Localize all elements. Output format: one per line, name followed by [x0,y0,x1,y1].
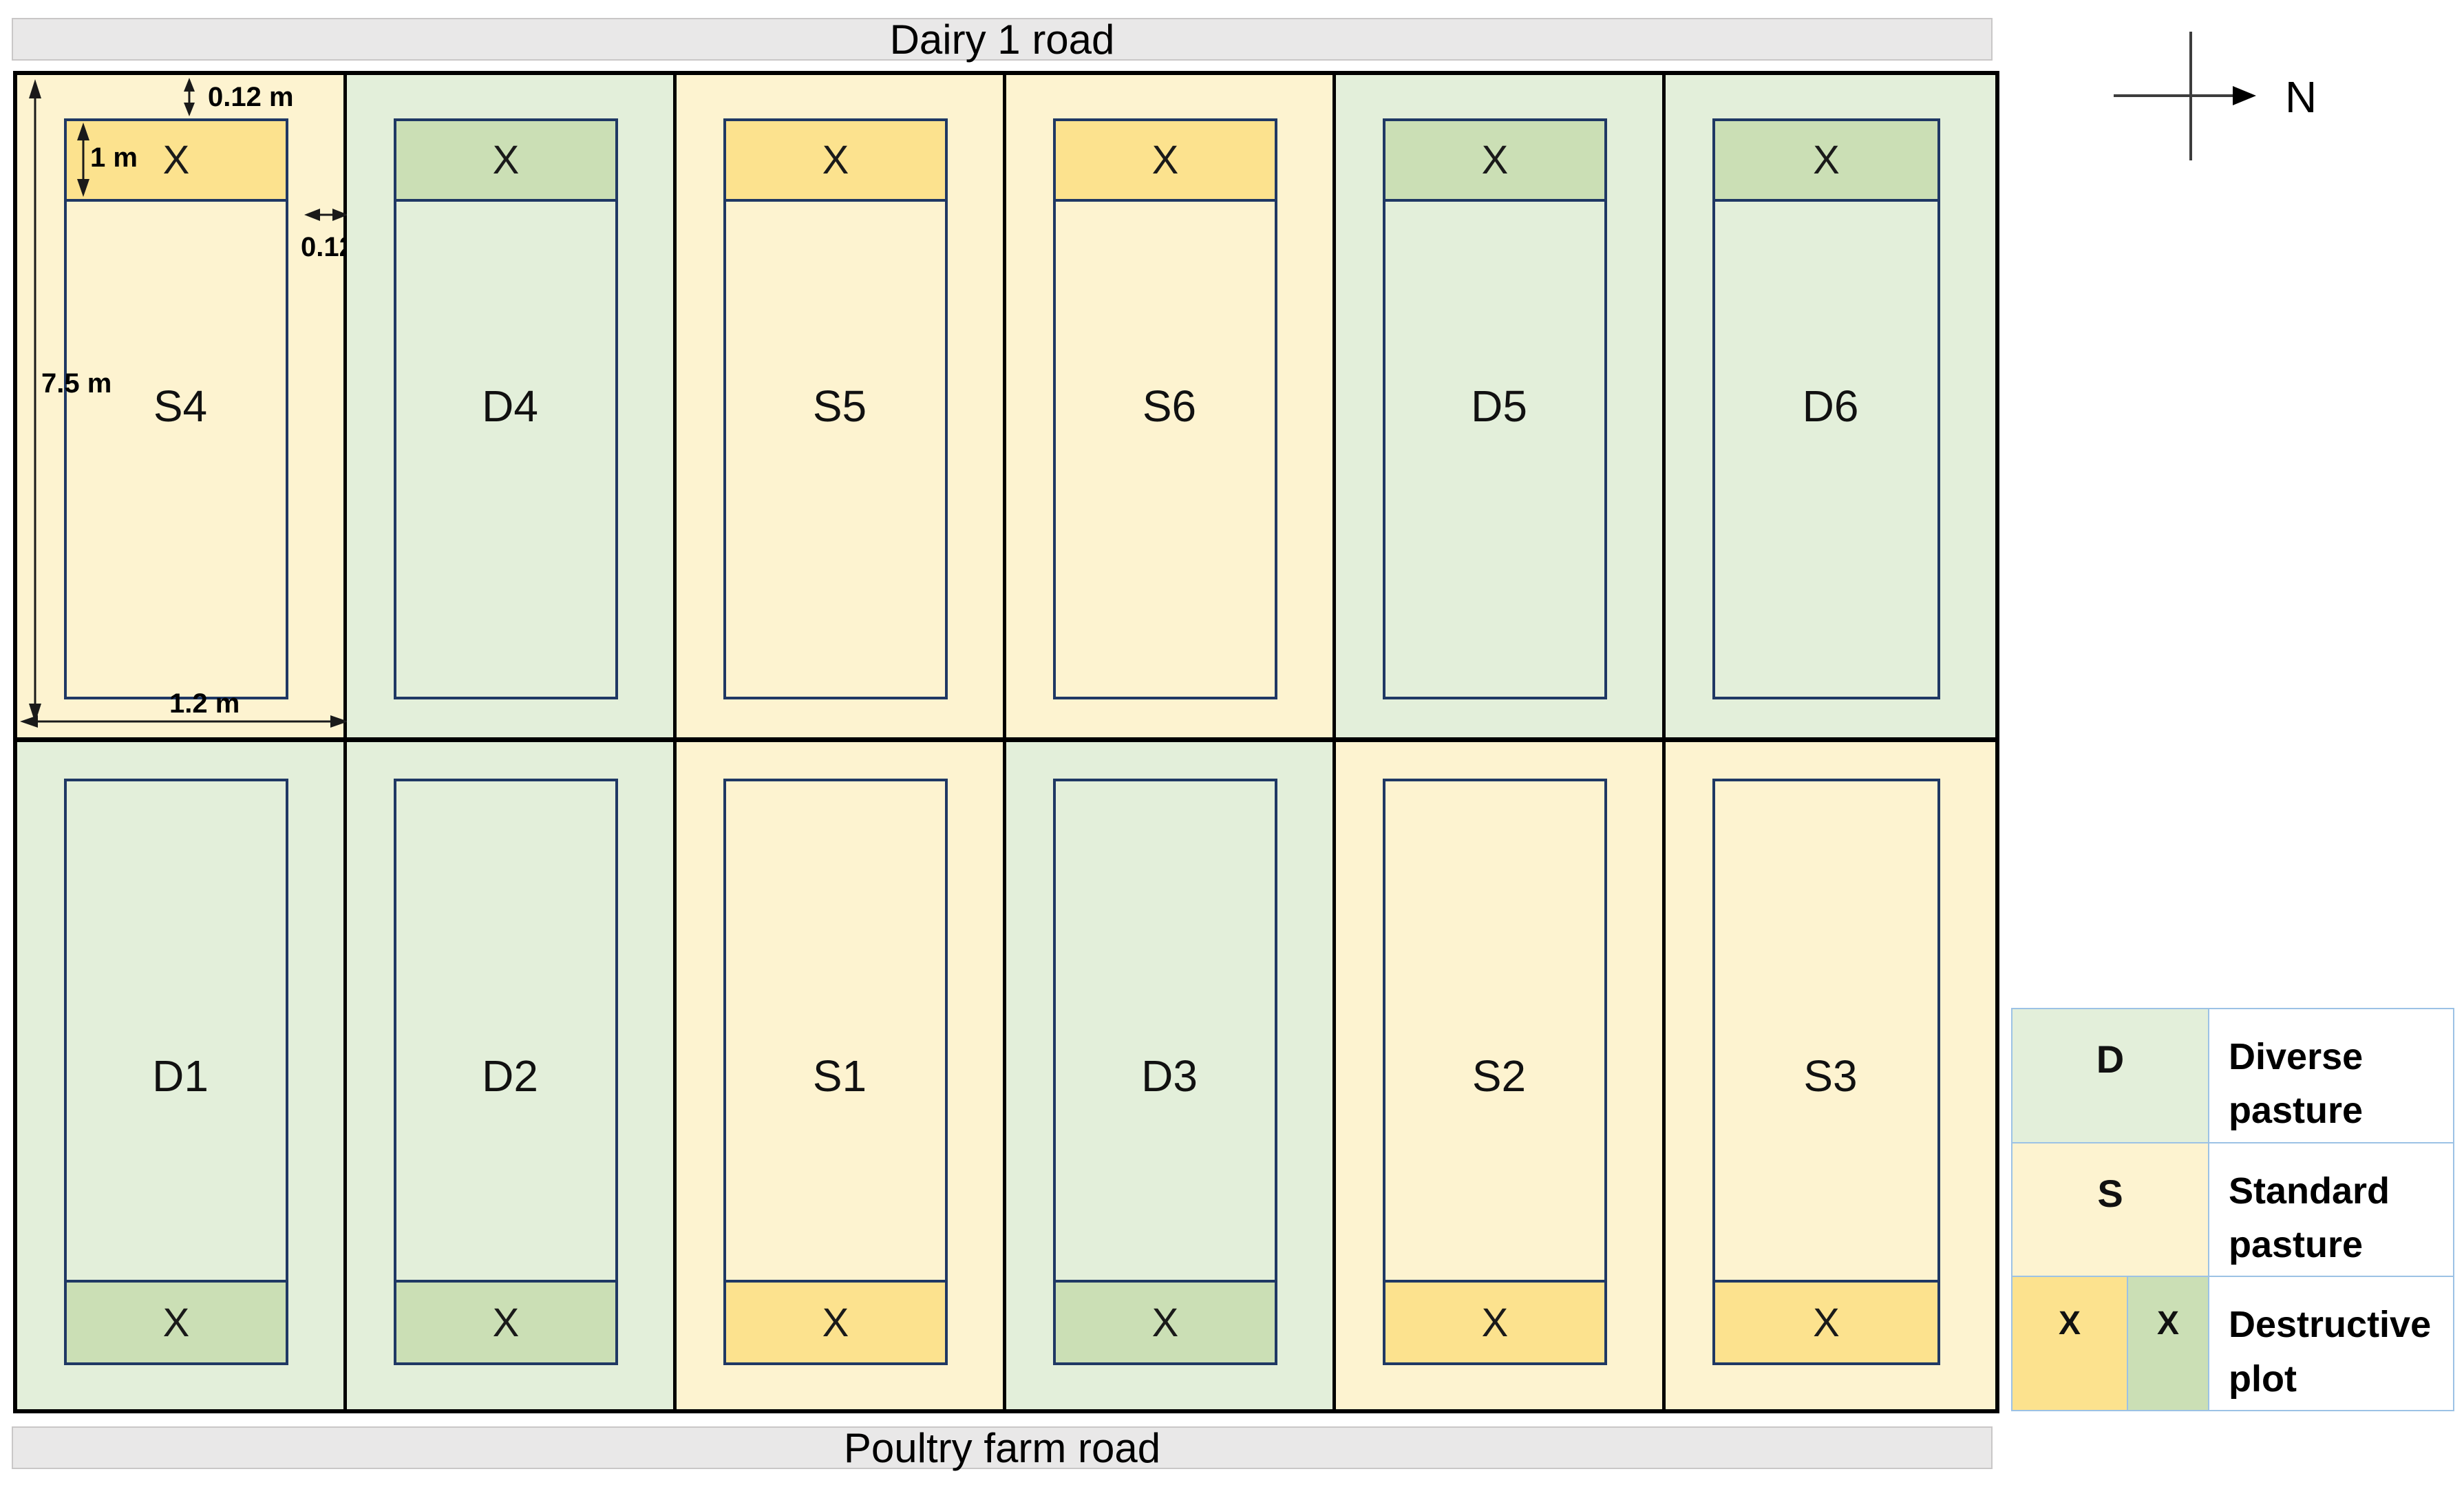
plot-S6-inner-rect: X [1053,118,1277,699]
plot-S3-inner-rect: X [1712,779,1940,1365]
top-road-bar: Dairy 1 road [12,18,1993,61]
legend-row-destructive: X X Destructive plot [2012,1277,2453,1410]
plot-D1-destructive-strip: X [67,1280,286,1362]
legend-swatch-diverse: D [2012,1009,2209,1142]
plot-S5: X S5 [677,75,1006,742]
dimension-arrows [17,75,343,737]
legend: D Diverse pasture S Standard pasture X X… [2011,1008,2454,1411]
destructive-marker: X [1152,1300,1179,1346]
plot-S2: X S2 [1336,742,1666,1409]
plot-S1: X S1 [677,742,1006,1409]
plot-D2-inner-rect: X [394,779,618,1365]
legend-swatch-destructive-diverse: X [2128,1277,2208,1410]
destructive-marker: X [493,137,520,183]
plot-D6-inner-rect: X [1712,118,1940,699]
plot-D3-inner-rect: X [1053,779,1277,1365]
plot-D4-destructive-strip: X [396,121,615,202]
legend-swatch-destructive: X X [2012,1277,2209,1410]
plot-D3: X D3 [1006,742,1336,1409]
dimension-strip-height: 1 m [90,144,138,171]
destructive-marker: X [822,1300,849,1346]
plot-D3-destructive-strip: X [1056,1280,1275,1362]
legend-row-diverse: D Diverse pasture [2012,1009,2453,1143]
legend-label-standard: Standard pasture [2209,1143,2453,1276]
destructive-marker: X [1482,137,1509,183]
experiment-field: X S4 [13,71,1999,1413]
destructive-marker: X [163,1300,190,1346]
bottom-road-bar: Poultry farm road [12,1426,1993,1469]
legend-swatch-destructive-standard: X [2012,1277,2128,1410]
legend-symbol-destructive-standard: X [2059,1305,2081,1342]
destructive-marker: X [493,1300,520,1346]
plot-S1-destructive-strip: X [726,1280,945,1362]
destructive-marker: X [1813,137,1840,183]
legend-symbol-standard: S [2097,1171,2123,1216]
plot-D6: X D6 [1666,75,1995,742]
plot-S4: X S4 [17,75,347,742]
dimension-top-offset: 0.12 m [208,83,294,111]
plot-S5-inner-rect: X [723,118,948,699]
plot-D1-inner-rect: X [64,779,288,1365]
plot-S3-destructive-strip: X [1715,1280,1937,1362]
plot-D5: X D5 [1336,75,1666,742]
plot-S6-destructive-strip: X [1056,121,1275,202]
legend-label-destructive: Destructive plot [2209,1277,2453,1410]
dimension-plot-length: 7.5 m [41,370,111,397]
plot-S2-destructive-strip: X [1385,1280,1604,1362]
legend-swatch-standard: S [2012,1143,2209,1276]
legend-row-standard: S Standard pasture [2012,1143,2453,1278]
plot-D5-inner-rect: X [1383,118,1607,699]
destructive-marker: X [822,137,849,183]
destructive-marker: X [1482,1300,1509,1346]
plot-D1: X D1 [17,742,347,1409]
plot-D4-inner-rect: X [394,118,618,699]
plot-D2-destructive-strip: X [396,1280,615,1362]
bottom-road-label: Poultry farm road [844,1424,1160,1472]
legend-symbol-destructive-diverse: X [2157,1305,2179,1342]
legend-symbol-diverse: D [2096,1037,2124,1082]
north-label: N [2285,72,2317,123]
plot-S2-inner-rect: X [1383,779,1607,1365]
destructive-marker: X [1813,1300,1840,1346]
top-road-label: Dairy 1 road [890,16,1115,63]
plot-S5-destructive-strip: X [726,121,945,202]
plot-D5-destructive-strip: X [1385,121,1604,202]
field-layout-diagram: Dairy 1 road X S4 [0,0,2464,1487]
plot-S3: X S3 [1666,742,1995,1409]
plot-D2: X D2 [347,742,677,1409]
plot-S1-inner-rect: X [723,779,948,1365]
dimension-plot-width: 1.2 m [169,690,240,717]
destructive-marker: X [1152,137,1179,183]
plot-D6-destructive-strip: X [1715,121,1937,202]
plot-D4: X D4 [347,75,677,742]
legend-label-diverse: Diverse pasture [2209,1009,2453,1142]
plot-S6: X S6 [1006,75,1336,742]
